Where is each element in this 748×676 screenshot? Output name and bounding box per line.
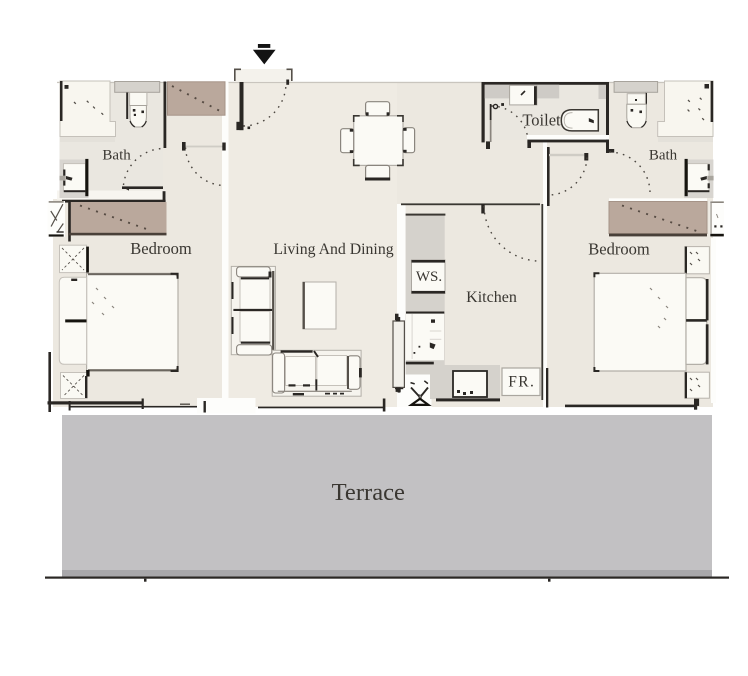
svg-text:Bedroom: Bedroom: [588, 240, 650, 259]
svg-text:Living And Dining: Living And Dining: [273, 241, 393, 258]
svg-text:Bath: Bath: [102, 148, 131, 164]
svg-text:Toilet: Toilet: [522, 111, 561, 130]
svg-text:FR.: FR.: [508, 374, 535, 391]
svg-text:Bath: Bath: [649, 148, 678, 164]
svg-text:Kitchen: Kitchen: [466, 289, 517, 306]
svg-text:Bedroom: Bedroom: [130, 239, 192, 258]
svg-text:Terrace: Terrace: [332, 479, 405, 506]
svg-text:WS.: WS.: [416, 269, 442, 285]
